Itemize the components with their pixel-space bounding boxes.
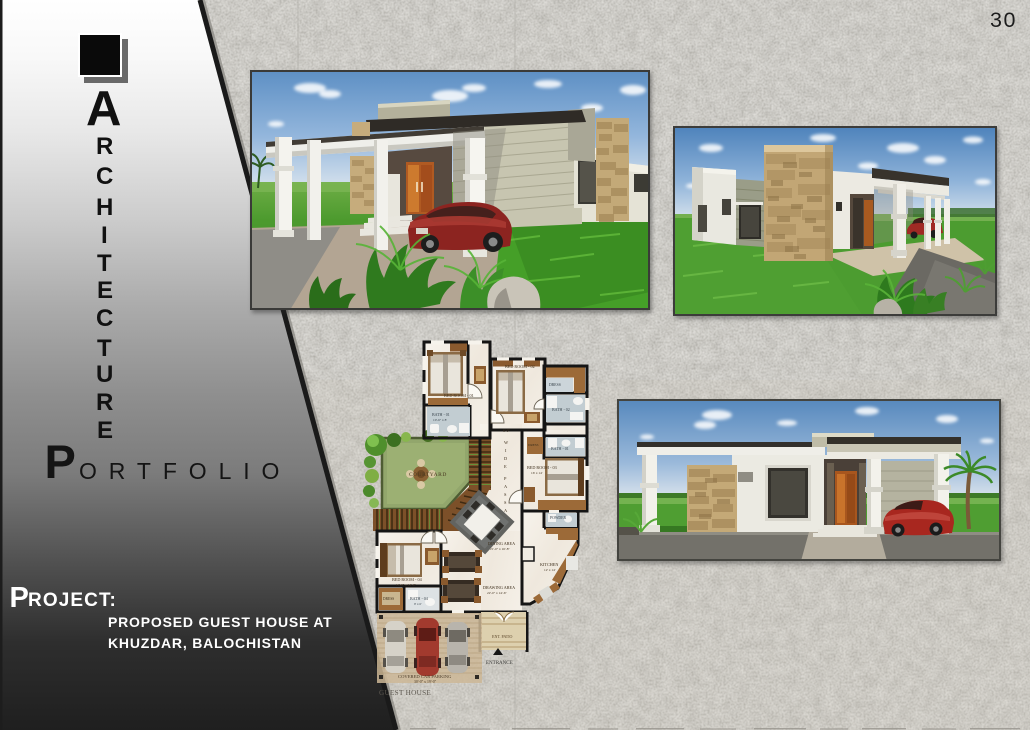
svg-text:12' x 14': 12' x 14' [544, 568, 556, 572]
svg-text:DRESS: DRESS [383, 597, 394, 601]
svg-text:22'-0" x 14'-6": 22'-0" x 14'-6" [487, 591, 507, 595]
svg-text:BATH - 04: BATH - 04 [410, 596, 428, 601]
svg-text:BATH - 02: BATH - 02 [552, 407, 570, 412]
svg-text:BATH - 01: BATH - 01 [432, 412, 450, 417]
svg-text:9' x 6': 9' x 6' [414, 602, 422, 606]
svg-text:KITCHEN: KITCHEN [540, 562, 558, 567]
svg-text:ENTRANCE: ENTRANCE [486, 661, 513, 666]
svg-text:D: D [504, 456, 507, 461]
svg-text:BED ROOM - 03: BED ROOM - 03 [527, 465, 557, 470]
svg-text:POWDER: POWDER [550, 516, 566, 520]
svg-text:COURTYARD: COURTYARD [409, 472, 447, 478]
svg-text:DRESS: DRESS [528, 443, 539, 447]
svg-text:DRAWING AREA: DRAWING AREA [483, 585, 515, 590]
svg-text:16' x 14': 16' x 14' [531, 471, 543, 475]
svg-text:BED ROOM - 04: BED ROOM - 04 [392, 577, 423, 582]
svg-text:BED ROOM - 01: BED ROOM - 01 [444, 393, 474, 398]
svg-text:ENT. PATIO: ENT. PATIO [492, 634, 513, 639]
svg-text:E: E [504, 464, 507, 469]
svg-text:21'-0" x 16'-8": 21'-0" x 16'-8" [490, 547, 510, 551]
svg-text:BED ROOM - 02: BED ROOM - 02 [505, 364, 535, 369]
svg-text:GUEST HOUSE: GUEST HOUSE [379, 689, 431, 697]
svg-text:30'-0" x 19'-0": 30'-0" x 19'-0" [414, 680, 437, 684]
svg-text:COVERED CAR PARKING: COVERED CAR PARKING [398, 674, 452, 679]
svg-text:6'-0": 6'-0" [503, 429, 510, 433]
svg-text:DRESS: DRESS [549, 383, 561, 387]
svg-text:10'-6" x 8': 10'-6" x 8' [433, 418, 447, 422]
svg-text:DINING AREA: DINING AREA [488, 541, 515, 546]
svg-text:BATH - 01: BATH - 01 [551, 446, 569, 451]
svg-text:16'-0" x 14'-6": 16'-0" x 14'-6" [396, 583, 416, 587]
